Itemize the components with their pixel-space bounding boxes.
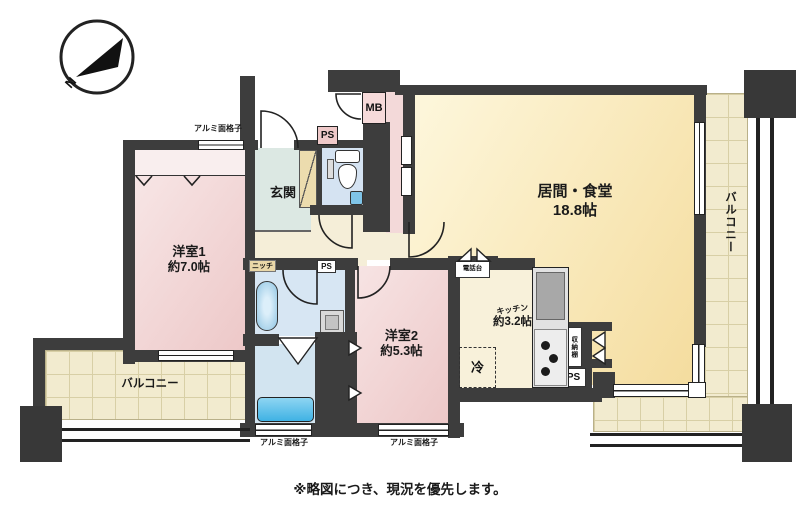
balcony-railing [58,428,250,431]
compass-north-icon: N [45,12,155,104]
wall-segment [245,140,255,437]
stove-burner [541,367,550,376]
wall-segment [243,334,279,346]
wall-segment [33,338,125,350]
pillar [20,406,62,462]
window [158,350,234,361]
kitchen-size: 約3.2帖 [470,316,555,329]
balcony-railing [770,96,774,426]
kitchen-sink [536,272,565,320]
pillar [744,70,796,118]
niche-label: ニッチ [249,260,276,272]
bedroom1-size: 約7.0帖 [133,261,245,275]
wall-segment [310,205,370,215]
pipe-space-washroom: PS [317,260,336,273]
wall-segment [240,76,255,150]
balcony-railing [756,96,760,426]
refrigerator-space: 冷 [459,347,496,388]
telephone-stand: 電話台 [455,261,490,278]
wall-segment [328,70,400,92]
balcony-railing [590,433,758,436]
balcony-right-name: バルコニー [712,160,736,285]
wall-segment [315,332,357,426]
window [378,424,449,436]
wall-segment [593,372,615,398]
floor-plan: MB PS PS PS ニッチ 電話台 収納棚 冷 [0,0,800,509]
wash-basin [256,281,278,331]
stove-burner [549,354,558,363]
aluminum-grille-label-bath: アルミ面格子 [245,439,323,448]
wall-segment [590,359,612,368]
balcony-railing [590,444,758,447]
bedroom2-name: 洋室2 [355,329,448,343]
sliding-window [694,122,705,215]
pillar [742,404,792,462]
bedroom2-size: 約5.3帖 [355,345,448,359]
wall-segment [317,148,322,208]
toilet-tank [335,150,360,163]
window-post [688,382,706,398]
corner-window [613,384,692,397]
bedroom1-name: 洋室1 [133,245,245,259]
pipe-space-entrance: PS [317,126,338,145]
entrance-name: 玄関 [255,186,311,200]
bedroom1-closet [133,150,245,176]
balcony-railing [58,439,250,442]
window [255,424,312,436]
closet-door-panel [401,167,412,196]
compass-north-label: N [62,74,79,91]
bathtub [257,397,314,422]
caption-disclaimer: ※略図につき、現況を優先します。 [0,483,800,498]
stove-burner [541,341,550,350]
balcony-bottom-right [593,396,748,432]
aluminum-grille-label-top: アルミ面格子 [178,125,258,134]
meter-box: MB [362,92,386,124]
wall-segment [363,122,390,232]
toilet-cabinet [350,191,363,205]
aluminum-grille-label-bedroom2: アルミ面格子 [375,439,453,448]
living-dining-size: 18.8帖 [500,203,650,220]
balcony-bottom-name: バルコニー [95,378,205,391]
toilet-control [327,159,334,179]
living-dining-name: 居間・食堂 [500,184,650,201]
window [198,140,244,150]
wall-segment [395,85,707,95]
closet-door-panel [401,136,412,165]
corner-window [692,344,705,386]
wall-segment [590,322,612,331]
